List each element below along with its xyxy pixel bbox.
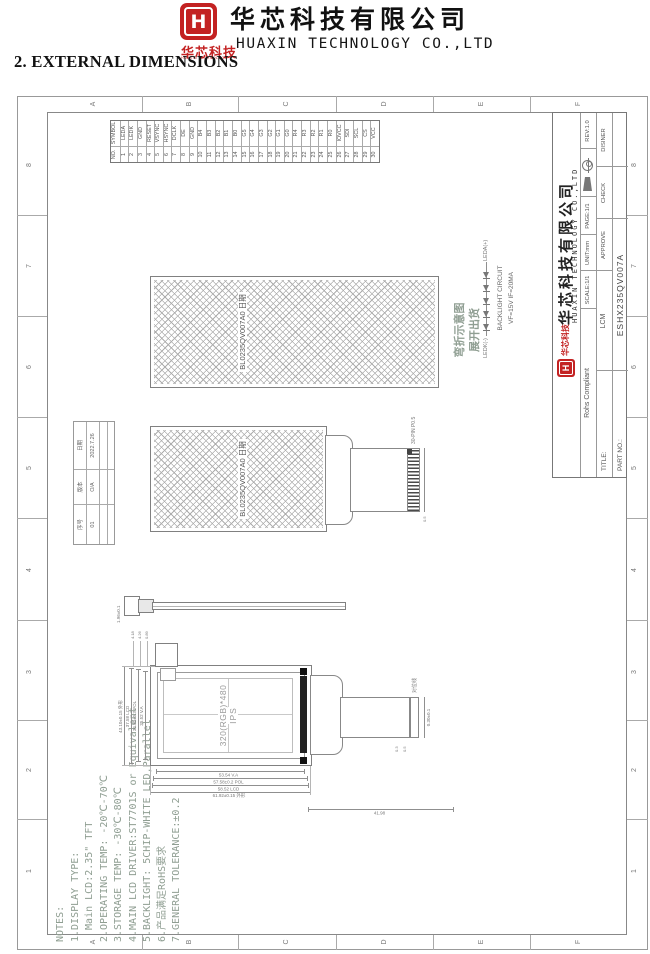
logo-letter: H	[184, 7, 213, 36]
protrusion-dim-line	[140, 641, 141, 667]
extension-line	[150, 766, 151, 795]
section-heading: 2. EXTERNAL DIMENSIONS	[14, 52, 238, 72]
dim-tick	[453, 807, 454, 812]
extension-line	[122, 765, 150, 766]
width-dim-label: 37.58 LCD	[125, 669, 130, 764]
width-dim-label: 36.80±0.3 POL	[132, 670, 137, 762]
dim-tick	[153, 776, 154, 781]
protrusion-dim-line	[133, 641, 134, 667]
dimension-lines: 43.10±0.15 外形37.58 LCD36.80±0.3 POL35.52…	[17, 96, 648, 950]
extension-line	[122, 666, 155, 667]
width-dim-label: 35.52 V.A	[139, 672, 144, 760]
connector-small-dim: 0.3	[394, 746, 399, 752]
fpc-length-label: 41.98	[350, 811, 410, 816]
protrusion-dim-line	[147, 641, 148, 667]
dim-tick	[152, 783, 153, 788]
company-name-cn: 华芯科技有限公司	[230, 0, 470, 36]
height-dim-label: 61.92±0.15 外形	[199, 793, 259, 799]
dim-tick	[304, 769, 305, 774]
drawing-sheet: 1122334455667788AABBCCDDEEFF NOTES:1.DIS…	[17, 96, 648, 950]
dim-tick	[308, 807, 309, 812]
width-dim-line	[145, 672, 146, 760]
protrusion-dim-label: 0.89	[144, 631, 149, 639]
protrusion-dim-label: 4.26	[137, 631, 142, 639]
height-dim-label: 53.54 V.A	[199, 773, 259, 778]
dim-tick	[156, 769, 157, 774]
height-dim-label: 58.52 LCD	[199, 787, 259, 792]
company-logo-icon: H	[180, 3, 217, 40]
connector-small-dim: 0.5	[402, 746, 407, 752]
width-dim-label: 43.10±0.15 外形	[118, 667, 124, 766]
page: { "header": { "logo_letter": "H", "compa…	[0, 0, 650, 954]
dim-tick	[308, 783, 309, 788]
company-name-en: HUAXIN TECHNOLOGY CO.,LTD	[236, 36, 494, 52]
dim-tick	[307, 776, 308, 781]
protrusion-dim-label: 4.18	[130, 631, 135, 639]
height-dim-label: 57.58±0.2 POL	[199, 780, 259, 785]
extension-line	[310, 766, 311, 795]
